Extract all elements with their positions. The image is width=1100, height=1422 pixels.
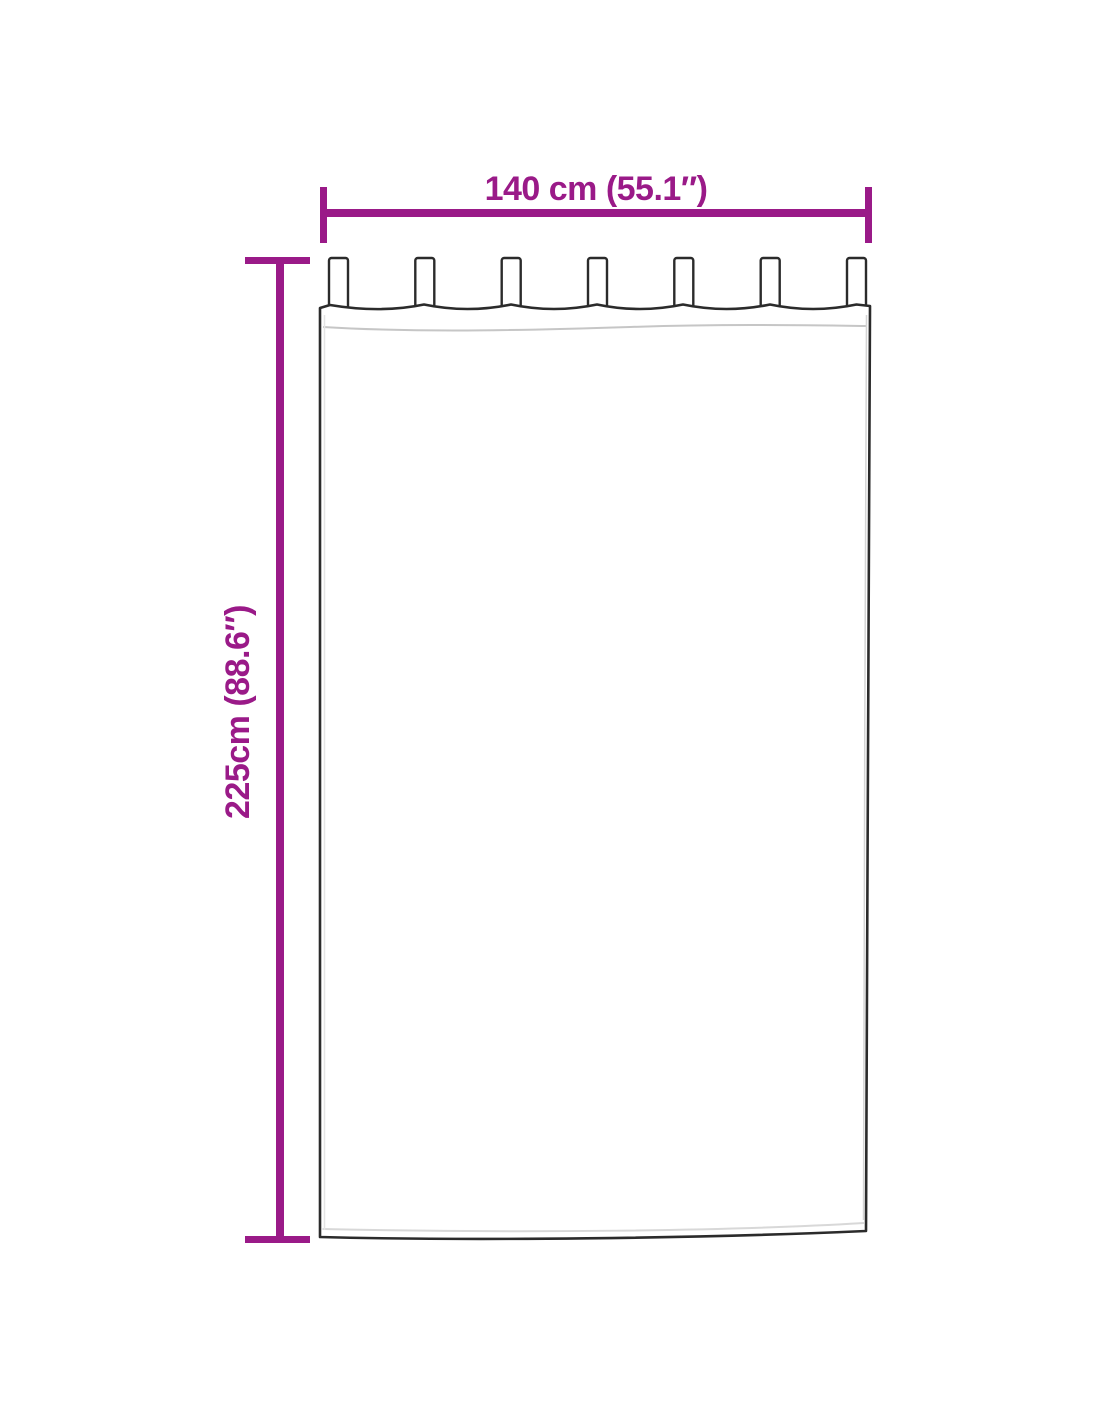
height-dimension-cap-bottom [245,1236,310,1243]
curtain-tabs [329,258,866,310]
height-dimension-line [276,258,284,1241]
width-dimension-line [320,209,872,217]
width-dimension-label: 140 cm (55.1″) [320,172,872,206]
curtain-tab [588,258,607,310]
curtain-tab [415,258,434,310]
curtain-tab [761,258,780,310]
curtain-tab [674,258,693,310]
curtain-body [320,305,870,1239]
curtain-tab [502,258,521,310]
curtain-tab [329,258,348,310]
height-dimension-cap-top [245,257,310,264]
curtain-tab [847,258,866,310]
dimension-diagram: 140 cm (55.1″) 225cm (88.6″) [0,0,1100,1422]
height-dimension-label: 225cm (88.6″) [221,605,255,819]
